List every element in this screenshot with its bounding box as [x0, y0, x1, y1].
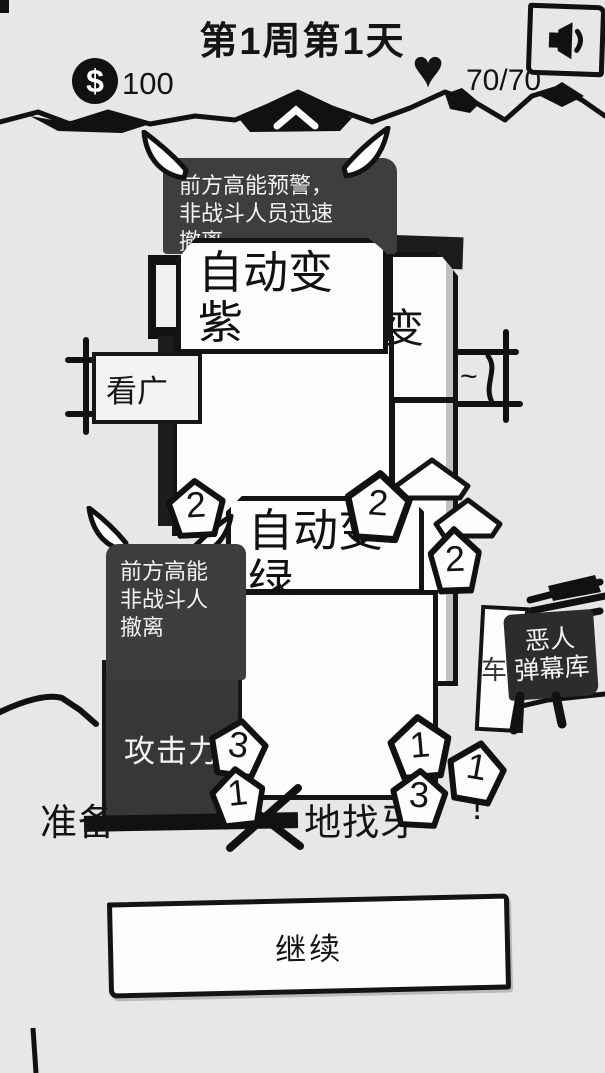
continue-button[interactable]: 继续 — [107, 893, 511, 998]
enemy-barrage-sign[interactable]: 恶人 弹幕库 — [503, 609, 599, 701]
battle-caption-part: 准备 — [40, 792, 116, 846]
tooltip-line: 撤离 — [120, 614, 246, 642]
health-heart-icon: ♥ — [412, 42, 444, 96]
auto-purple-button[interactable]: 自动变紫 — [176, 238, 388, 354]
continue-label: 继续 — [274, 923, 343, 970]
date-title: 第1周第1天 — [0, 10, 605, 65]
badge-value: 2 — [343, 480, 414, 527]
badge-value: 1 — [386, 721, 453, 768]
watch-ad-label: 看广 — [106, 366, 168, 411]
horn-right-icon — [338, 126, 394, 178]
partial-sign-text: 车 — [481, 650, 507, 687]
game-screen: 第1周第1天 $ 100 ♥ 70/70 变 前方高能预警， 非战斗人员迅速 撤… — [0, 0, 605, 1073]
level-badge: 2 — [427, 525, 483, 595]
watch-ad-button[interactable]: 看广 — [92, 352, 202, 424]
money-value: 100 — [122, 66, 174, 102]
tooltip-line: 非战斗人 — [120, 586, 246, 614]
badge-value: 2 — [427, 537, 482, 581]
badge-value: 2 — [165, 482, 227, 527]
level-badge: 1 — [207, 763, 269, 831]
partial-bubble-text: 变 — [384, 296, 424, 354]
tilde-sign-text: ~ — [460, 360, 478, 394]
level-badge: 2 — [342, 468, 415, 545]
level-badge: 1 — [441, 735, 511, 808]
money-coin-icon: $ — [72, 58, 118, 104]
enemy-barrage-line: 恶人 — [524, 624, 576, 656]
sound-button[interactable] — [526, 3, 605, 78]
horn-left-icon — [138, 130, 190, 180]
badge-value: 3 — [389, 773, 449, 818]
warning-tooltip-left: 前方高能 非战斗人 撤离 — [106, 544, 246, 680]
dollar-glyph: $ — [86, 63, 104, 100]
tooltip-line: 前方高能 — [120, 558, 246, 586]
speaker-icon — [544, 17, 588, 62]
badge-value: 1 — [208, 769, 268, 817]
enemy-barrage-line: 弹幕库 — [514, 652, 591, 686]
tooltip-line: 非战斗人员迅速 — [179, 200, 397, 228]
level-badge: 2 — [164, 476, 227, 539]
auto-purple-label: 自动变紫 — [198, 248, 348, 348]
